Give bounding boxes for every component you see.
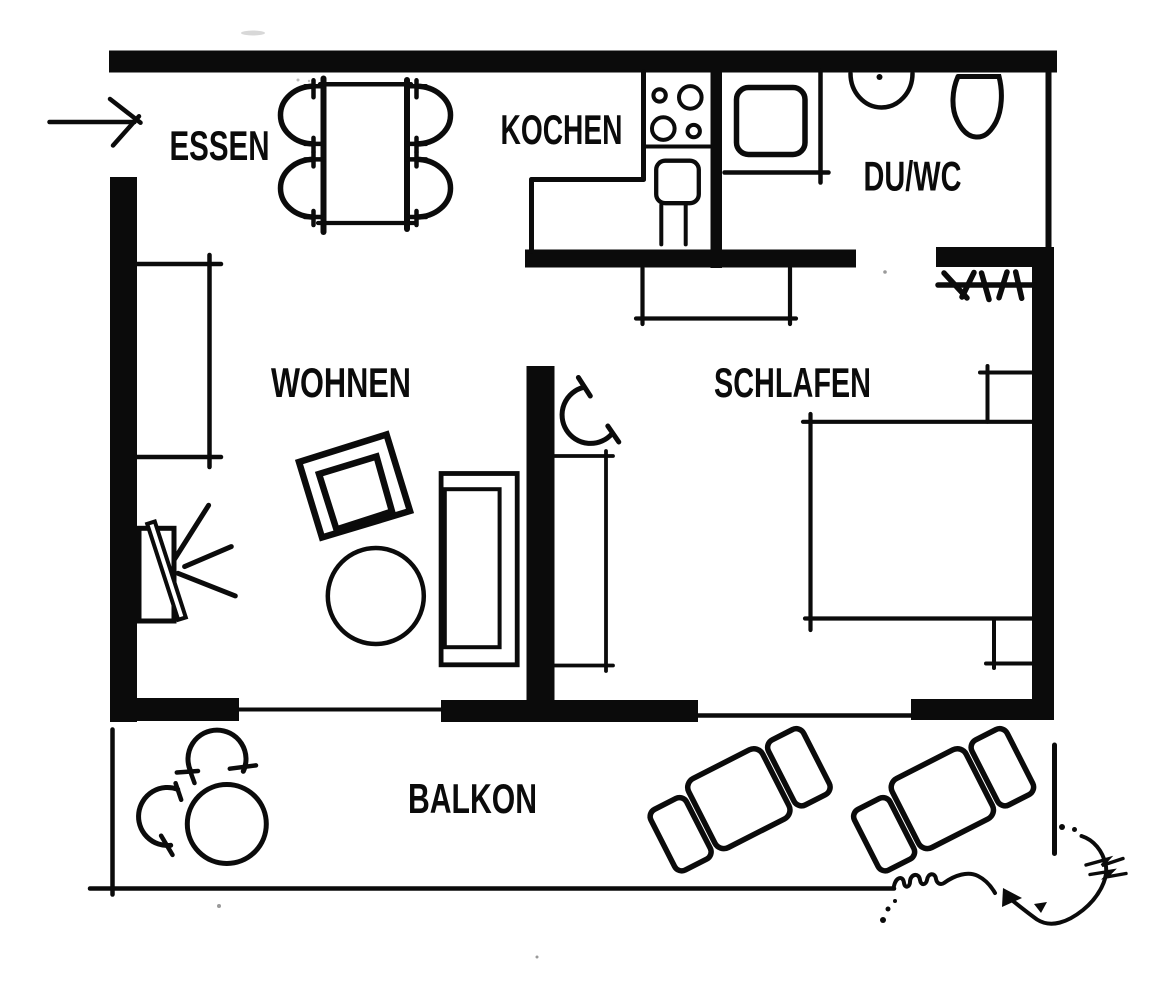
svg-text:SCHLAFEN: SCHLAFEN	[714, 359, 871, 406]
svg-text:KOCHEN: KOCHEN	[501, 106, 623, 153]
svg-text:WOHNEN: WOHNEN	[271, 359, 411, 406]
svg-text:BALKON: BALKON	[408, 775, 537, 822]
svg-text:ESSEN: ESSEN	[170, 122, 270, 169]
svg-text:DU/WC: DU/WC	[864, 153, 962, 200]
